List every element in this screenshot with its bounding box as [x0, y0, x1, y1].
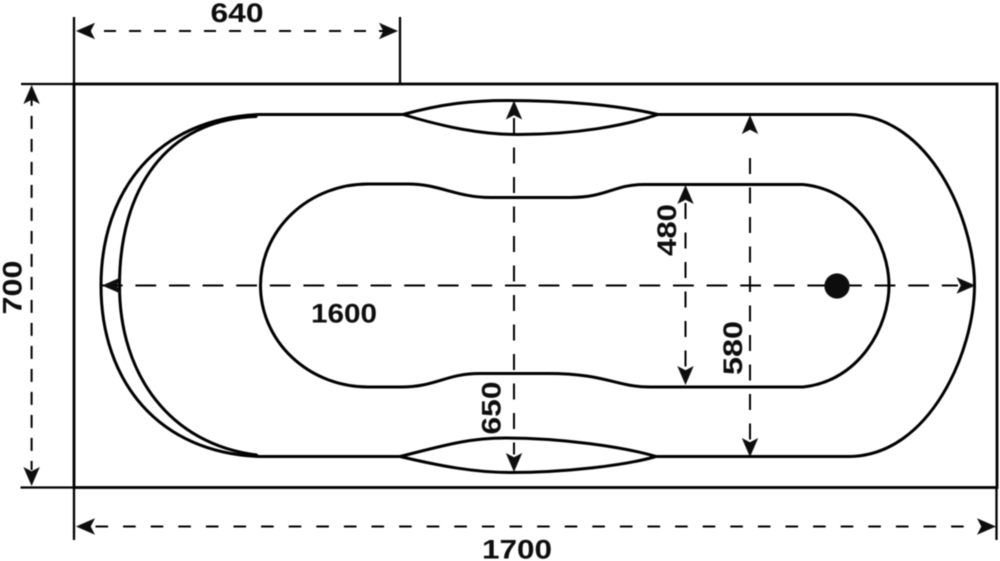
- svg-text:480: 480: [652, 204, 682, 256]
- svg-text:1700: 1700: [482, 535, 552, 561]
- svg-text:700: 700: [0, 261, 28, 315]
- svg-text:650: 650: [477, 382, 507, 435]
- svg-text:580: 580: [718, 321, 748, 375]
- svg-text:640: 640: [211, 0, 264, 28]
- svg-text:1600: 1600: [311, 299, 377, 329]
